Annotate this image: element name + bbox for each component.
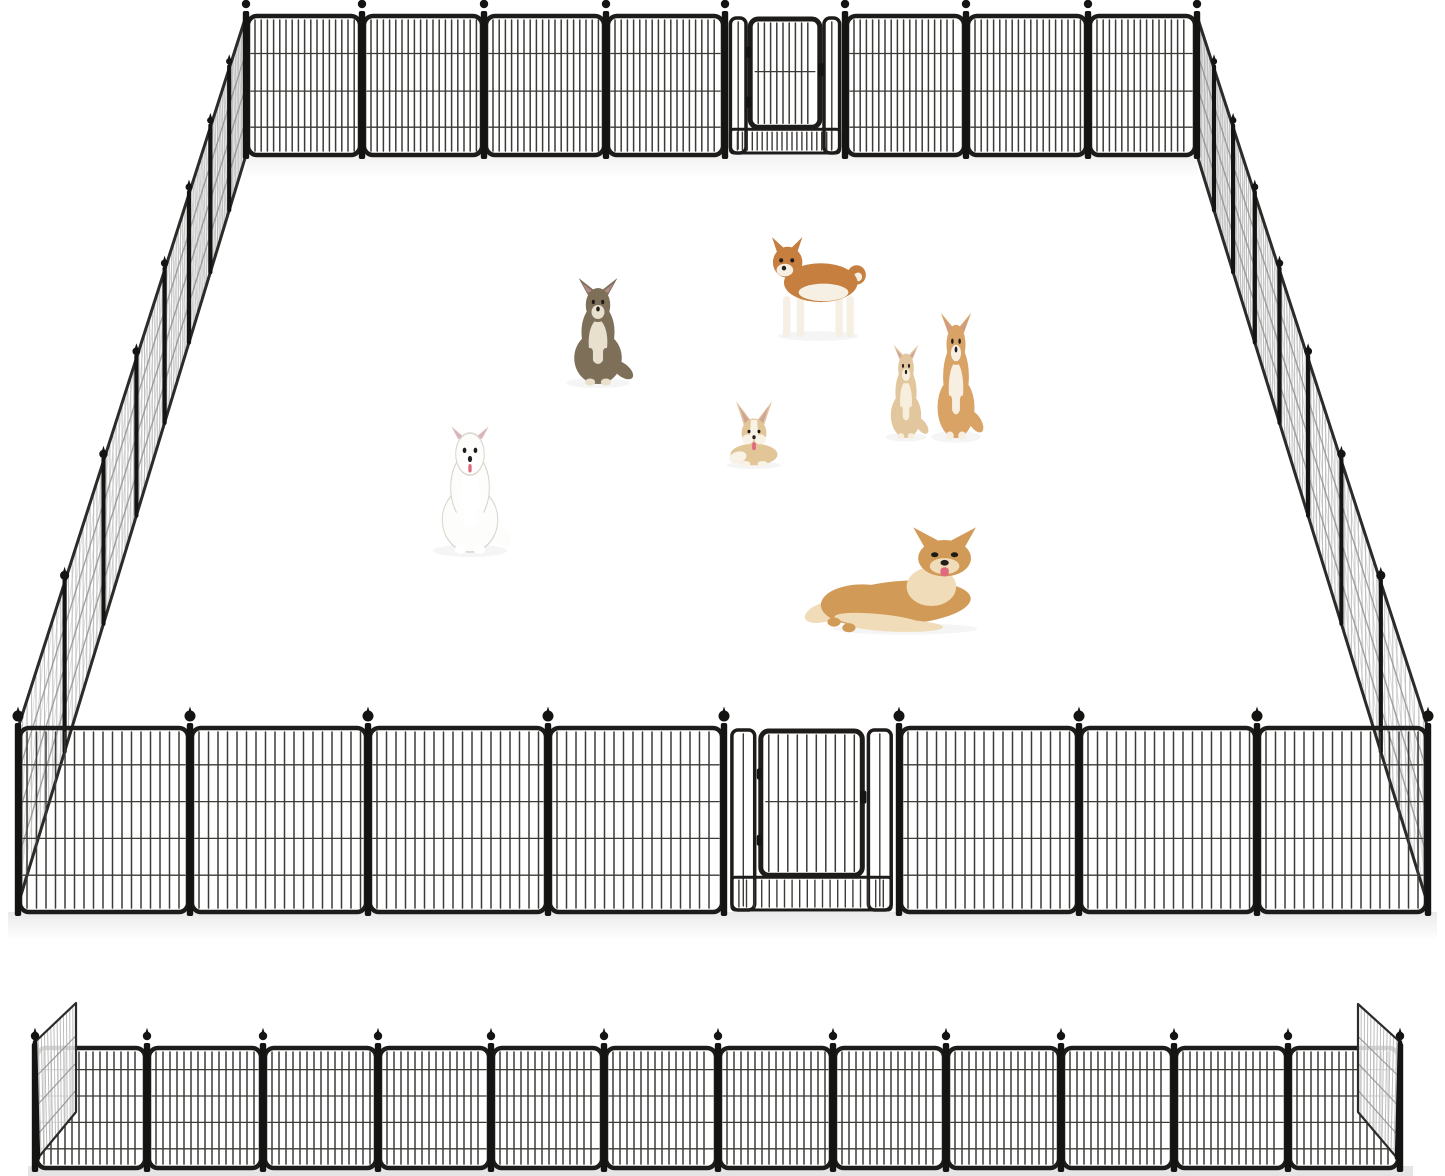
strip-left-end-panel bbox=[31, 1003, 76, 1158]
dog-cream-chihuahua-puppy bbox=[886, 345, 930, 442]
dog-golden-dog-lying bbox=[799, 527, 977, 634]
dog-shiba-inu-standing bbox=[772, 237, 866, 341]
back-wall-ground-shadow bbox=[246, 155, 1197, 179]
front-wall bbox=[13, 707, 1434, 917]
dog-white-samoyed-sitting bbox=[433, 421, 513, 557]
front-wall-ground-shadow bbox=[8, 912, 1437, 940]
right-wall bbox=[1197, 16, 1428, 905]
strip-right-end-panel bbox=[1358, 1004, 1404, 1158]
playpen-scene-svg bbox=[0, 0, 1445, 1176]
dog-shiba-puppy-sitting bbox=[931, 313, 984, 443]
dog-corgi-lying bbox=[727, 401, 782, 469]
unfolded-panel-strip bbox=[31, 1028, 1404, 1172]
dog-longhair-chihuahua-sitting bbox=[566, 278, 635, 388]
product-image bbox=[0, 0, 1445, 1176]
back-wall bbox=[242, 0, 1201, 159]
